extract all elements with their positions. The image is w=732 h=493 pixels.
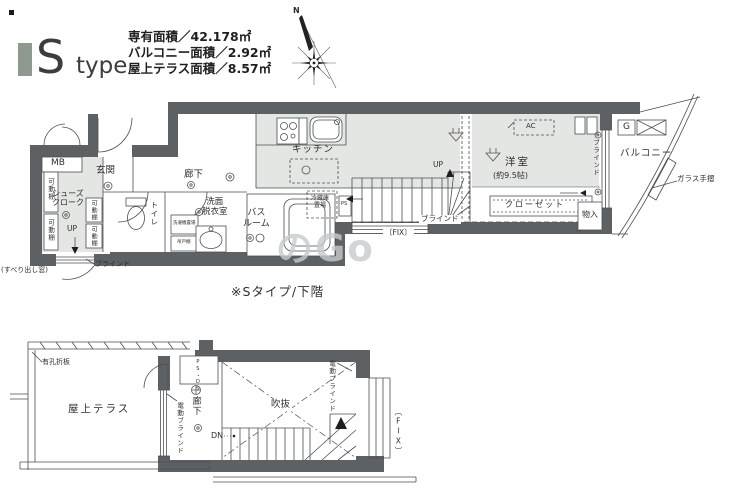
corner-mark (9, 10, 14, 15)
label-fix-lower: 〔FIX〕 (393, 408, 402, 444)
area-figures: 専有面積／42.178㎡ バルコニー面積／2.92㎡ 屋上テラス面積／8.57㎡ (128, 29, 271, 77)
label-roof-terrace: 屋上テラス (68, 403, 130, 415)
label-g-meter: G (623, 122, 630, 133)
label-electric-blind-left: 電動ブラインド (175, 402, 183, 458)
label-genkan: 玄関 (96, 165, 115, 176)
label-shelf-4: 可動棚 (90, 226, 97, 247)
label-kitchen: キッチン (292, 144, 334, 155)
label-blind-room: ブラインド (419, 215, 461, 224)
label-up-stairs: UP (433, 161, 443, 170)
label-mb: MB (51, 158, 65, 169)
label-closet: クローゼット (505, 200, 565, 209)
label-sliding-window: (すべり出し窓) (1, 266, 48, 274)
plan-caption: ※Sタイプ/下階 (231, 281, 324, 300)
label-fridge: 冷蔵庫 置場 (311, 195, 329, 209)
logo-s: S (36, 30, 65, 84)
label-bathroom: バス ルーム (243, 208, 270, 229)
label-cupboard: 吊戸棚 (177, 240, 191, 245)
label-glass-rail: ガラス手摺 (677, 175, 714, 184)
logo-type: type (76, 53, 127, 79)
label-washer: 洗濯機置場 (173, 221, 196, 226)
label-ps-upper: PS (341, 202, 347, 208)
compass-north-label: N (293, 6, 300, 15)
label-ac: AC (526, 122, 536, 130)
label-fix-upper: 〔FIX〕 (383, 229, 414, 238)
label-mono-ire: 物入 (582, 210, 598, 219)
logo-bar (18, 43, 32, 76)
label-toilet: トイレ (149, 201, 158, 231)
label-up-entrance: UP (67, 225, 77, 234)
floorplan-page: のGo S type 専有面積／42.178㎡ バルコニー面積／2.92㎡ 屋上… (0, 0, 732, 493)
label-hallway-lower: 廊下 (190, 396, 201, 424)
label-washroom: 洗面 脱衣室 (202, 197, 228, 217)
label-blind-balcony-door: ブラインド (591, 139, 599, 187)
label-shelf-3: 可動棚 (90, 200, 97, 221)
watermark: のGo (276, 218, 375, 272)
label-shelf-1: 可動棚 (46, 178, 54, 210)
label-ps-ds: PS・DS (194, 359, 200, 383)
compass-icon (292, 15, 336, 88)
label-void: 吹抜 (269, 399, 292, 410)
label-room-size: (約9.5帖) (493, 171, 528, 180)
label-shoes-closet: シューズ クローク (52, 189, 84, 208)
label-dn: DN (211, 431, 223, 440)
label-blind-entrance: ブラインド (95, 260, 130, 268)
label-perforated-plate: 有孔折板 (42, 358, 70, 366)
label-balcony: バルコニー (620, 148, 672, 159)
label-shelf-2: 可動棚 (46, 219, 54, 249)
label-room: 洋室 (505, 156, 530, 168)
label-electric-blind-right: 電動ブラインド (327, 360, 335, 416)
label-hallway-upper: 廊下 (184, 169, 203, 180)
